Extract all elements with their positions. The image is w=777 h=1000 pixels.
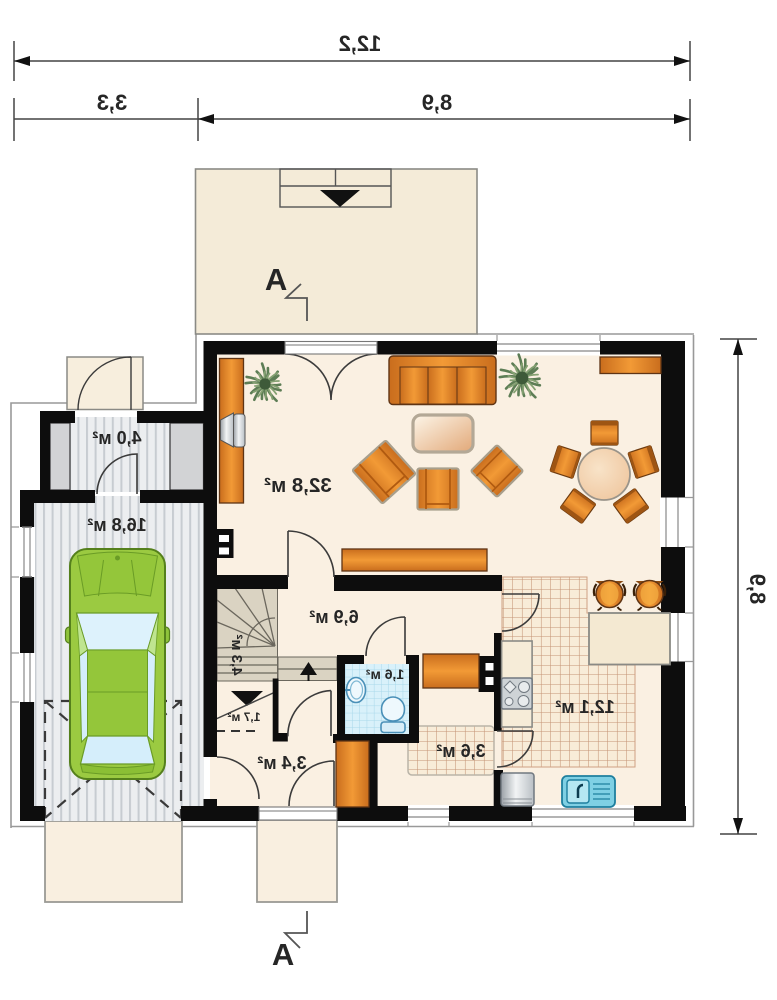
svg-text:A: A	[272, 937, 294, 972]
svg-text:6,9 м²: 6,9 м²	[309, 607, 358, 627]
svg-text:8,9: 8,9	[422, 90, 453, 115]
svg-text:12,2: 12,2	[339, 31, 382, 56]
svg-text:12,1 м²: 12,1 м²	[555, 697, 614, 717]
svg-text:8,9: 8,9	[745, 574, 770, 605]
svg-text:4,0 м²: 4,0 м²	[92, 428, 141, 448]
svg-text:32,8 м²: 32,8 м²	[264, 474, 332, 497]
svg-text:4,3 м²: 4,3 м²	[228, 634, 245, 675]
svg-text:1,7 м²: 1,7 м²	[228, 710, 261, 724]
svg-text:3,6 м²: 3,6 м²	[436, 741, 485, 761]
svg-text:1,6 м²: 1,6 м²	[365, 666, 404, 682]
svg-text:16,8 м²: 16,8 м²	[87, 515, 146, 535]
svg-text:A: A	[265, 262, 287, 297]
svg-text:3,4 м²: 3,4 м²	[257, 753, 306, 773]
svg-text:3,3: 3,3	[97, 90, 128, 115]
